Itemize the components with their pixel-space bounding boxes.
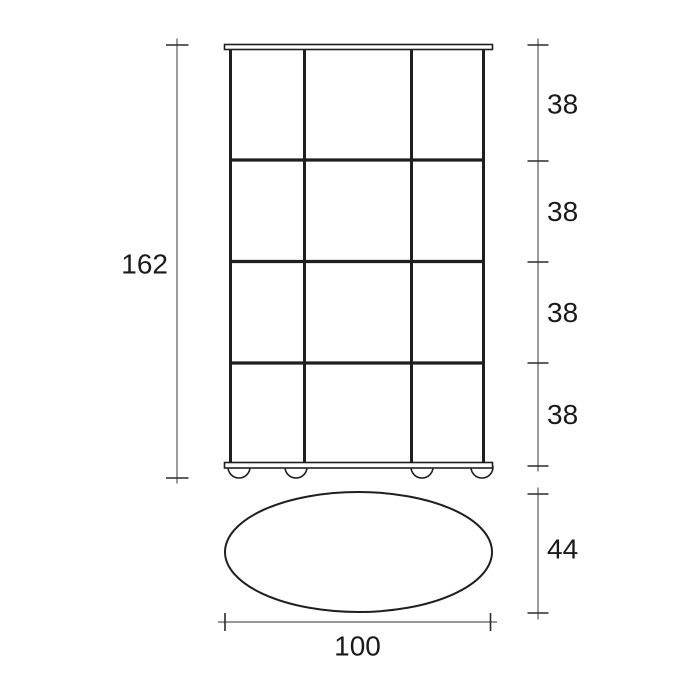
compartment-height-label-2: 38	[547, 196, 578, 227]
compartment-height-label-1: 38	[547, 89, 578, 120]
height-dimension-label: 162	[121, 249, 168, 280]
height-dimension: 162	[121, 39, 188, 484]
furniture-dimension-drawing: 162 38 38 38 38 44 100	[0, 0, 700, 700]
compartment-dimension-chain: 38 38 38 38	[528, 39, 579, 472]
cabinet-top-panel	[225, 45, 493, 50]
width-dimension: 100	[218, 613, 497, 662]
depth-dimension-label: 44	[547, 534, 578, 565]
compartment-height-label-3: 38	[547, 297, 578, 328]
dimension-drawing-canvas: 162 38 38 38 38 44 100	[0, 0, 700, 700]
width-dimension-label: 100	[334, 631, 381, 662]
front-view	[225, 45, 494, 479]
depth-dimension: 44	[528, 488, 579, 620]
cabinet-bottom-panel	[225, 463, 493, 469]
top-view-ellipse	[225, 492, 492, 612]
compartment-height-label-4: 38	[547, 399, 578, 430]
